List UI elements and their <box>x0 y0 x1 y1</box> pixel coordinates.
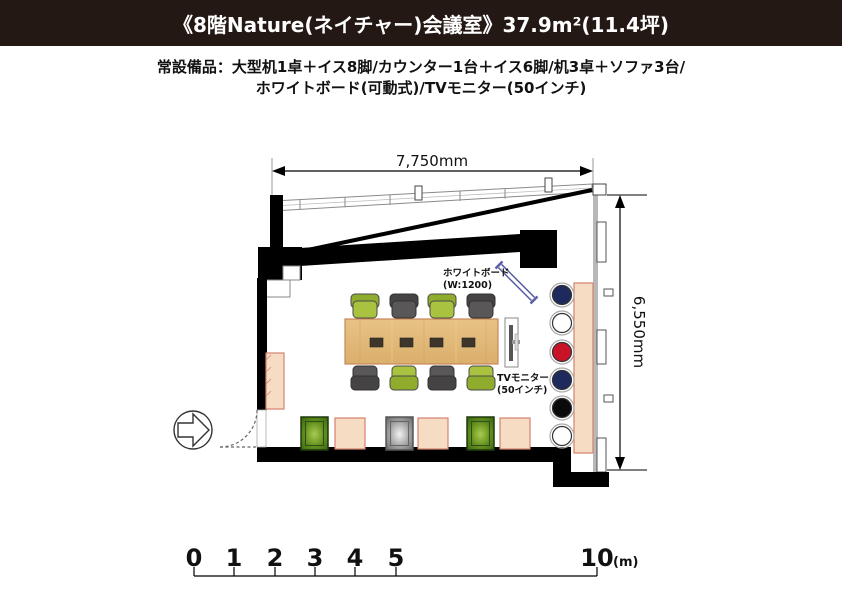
whiteboard-size-label: (W:1200) <box>443 280 492 291</box>
window-pane <box>597 330 606 364</box>
tv-label: TVモニター <box>497 372 549 384</box>
corner-post <box>593 184 606 195</box>
whiteboard-label: ホワイトボード <box>443 267 510 279</box>
chair-gray <box>467 294 495 318</box>
arrow-down-icon <box>615 457 625 470</box>
arrow-up-icon <box>615 195 625 208</box>
stool <box>550 424 574 448</box>
window-tick <box>604 395 613 402</box>
chair-green <box>467 366 495 390</box>
whiteboard-annotation: ホワイトボード (W:1200) <box>443 267 510 291</box>
stool <box>550 396 574 420</box>
chair-gray <box>428 366 456 390</box>
tv-monitor <box>505 318 520 367</box>
pillar <box>520 230 557 268</box>
stool <box>550 311 574 335</box>
table-outlet <box>370 338 383 347</box>
arrow-right-icon <box>580 166 593 176</box>
stool <box>550 368 574 392</box>
chair-gray <box>390 294 418 318</box>
sofa-gray <box>386 417 413 450</box>
sofa-green <box>301 417 328 450</box>
table-outlet <box>430 338 443 347</box>
window-pane <box>597 438 606 472</box>
window-post <box>415 186 422 200</box>
floor-plan: 7,750mm 6,550mm <box>0 0 842 595</box>
table-outlet <box>400 338 413 347</box>
right-window-wall <box>593 184 613 472</box>
side-table <box>500 418 530 449</box>
window-pane <box>597 222 606 262</box>
tv-annotation: TVモニター (50インチ) <box>497 372 549 396</box>
arrow-left-icon <box>272 166 285 176</box>
window-post <box>545 178 552 192</box>
top-window-wall <box>273 178 592 211</box>
entrance-door <box>220 410 266 447</box>
entry-arrow-icon <box>174 411 212 449</box>
wall-beam <box>300 234 520 266</box>
wall-step <box>265 280 290 297</box>
wall-step <box>283 266 300 280</box>
chair-green <box>351 294 379 318</box>
table-outlet <box>462 338 475 347</box>
scale-unit: (m) <box>613 555 638 570</box>
tv-size-label: (50インチ) <box>497 385 547 396</box>
conference-table <box>345 319 498 364</box>
wall-left-top <box>270 195 283 248</box>
door-swing-arc <box>220 410 257 447</box>
wall-bottom-right <box>553 472 609 487</box>
dimension-height: 6,550mm <box>607 195 648 470</box>
stool <box>550 283 574 307</box>
door-opening <box>257 410 266 447</box>
window-band <box>273 184 592 211</box>
height-dim-label: 6,550mm <box>630 296 648 368</box>
side-table <box>335 418 365 449</box>
chair-green <box>428 294 456 318</box>
width-dim-label: 7,750mm <box>396 152 468 170</box>
window-tick <box>604 289 613 296</box>
side-table <box>418 418 448 449</box>
scale-bar: 0 1 2 3 4 5 10 (m) <box>186 544 639 576</box>
chair-gray <box>351 366 379 390</box>
sofa-green <box>467 417 494 450</box>
side-shelf <box>266 353 284 409</box>
chair-green <box>390 366 418 390</box>
floor-plan-page: 《8階Nature(ネイチャー)会議室》37.9m²(11.4坪) 常設備品：大… <box>0 0 842 595</box>
counter <box>574 283 593 453</box>
stool <box>550 340 574 364</box>
